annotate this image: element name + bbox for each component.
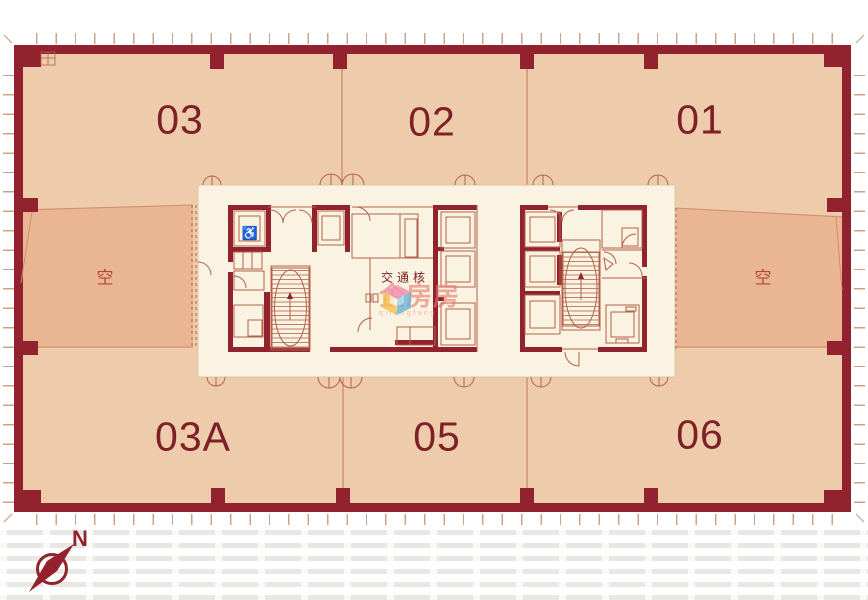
void-label-right: 空 <box>755 264 772 289</box>
brand-logo-icon <box>377 283 419 319</box>
north-label: N <box>72 526 88 552</box>
unit-label-03: 03 <box>156 97 204 144</box>
unit-label-05: 05 <box>413 414 461 461</box>
floorplan-page: ♿ <box>0 0 868 600</box>
compass-icon <box>29 544 74 592</box>
corner-detail <box>41 52 55 65</box>
unit-label-01: 01 <box>676 97 724 144</box>
brand-watermark: 企房房 qifangfang <box>377 283 460 317</box>
void-label-left: 空 <box>97 264 114 289</box>
unit-label-03A: 03A <box>155 414 231 461</box>
wheelchair-icon: ♿ <box>242 225 258 240</box>
unit-label-02: 02 <box>408 99 456 146</box>
unit-label-06: 06 <box>676 412 724 459</box>
